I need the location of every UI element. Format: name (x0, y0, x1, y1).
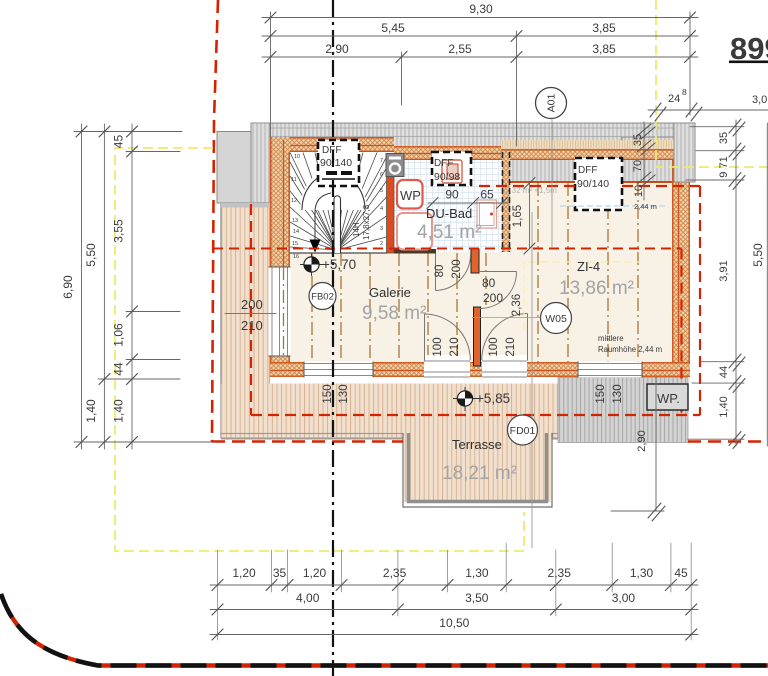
svg-text:44: 44 (718, 366, 730, 378)
svg-text:200: 200 (483, 291, 503, 305)
svg-text:FD01: FD01 (510, 425, 536, 437)
svg-text:2,35: 2,35 (383, 566, 407, 580)
svg-text:1,20: 1,20 (303, 566, 327, 580)
svg-text:2: 2 (380, 241, 383, 247)
svg-text:3,85: 3,85 (592, 42, 616, 56)
svg-text:9 71: 9 71 (718, 156, 730, 177)
svg-text:2,32 m² <1,5m: 2,32 m² <1,5m (505, 186, 557, 195)
svg-text:5,50: 5,50 (751, 243, 765, 267)
svg-text:90: 90 (445, 188, 459, 202)
svg-text:16: 16 (293, 254, 299, 260)
svg-text:10: 10 (633, 185, 645, 197)
svg-text:Galerie: Galerie (369, 285, 411, 300)
svg-text:100: 100 (432, 337, 444, 356)
svg-text:65: 65 (480, 188, 494, 202)
svg-text:7: 7 (380, 158, 383, 164)
svg-text:Terrasse: Terrasse (452, 437, 502, 452)
svg-text:15: 15 (292, 241, 298, 247)
svg-text:80: 80 (482, 276, 496, 290)
svg-text:+5,70: +5,70 (322, 257, 356, 272)
svg-text:1,30: 1,30 (465, 566, 489, 580)
svg-text:8: 8 (682, 87, 687, 97)
svg-text:11: 11 (291, 177, 297, 183)
svg-text:W05: W05 (545, 313, 567, 325)
svg-text:3,55: 3,55 (112, 219, 126, 243)
svg-text:130: 130 (612, 384, 624, 403)
svg-text:1,40: 1,40 (718, 396, 730, 417)
svg-text:13: 13 (292, 218, 298, 224)
svg-text:Raumhöhe 2,44 m: Raumhöhe 2,44 m (598, 345, 662, 354)
svg-text:80: 80 (434, 265, 446, 278)
svg-text:WP.: WP. (657, 391, 680, 406)
svg-text:+5,85: +5,85 (476, 391, 510, 406)
svg-text:2,55: 2,55 (448, 42, 472, 56)
svg-text:100: 100 (488, 337, 500, 356)
svg-text:6,90: 6,90 (61, 275, 75, 299)
svg-text:3: 3 (380, 226, 383, 232)
svg-text:DFF: DFF (578, 165, 597, 176)
svg-text:35: 35 (632, 134, 644, 146)
svg-text:4,00: 4,00 (296, 591, 320, 605)
svg-text:44: 44 (112, 362, 126, 376)
svg-text:13,86 m²: 13,86 m² (559, 278, 634, 299)
svg-text:DU-Bad: DU-Bad (426, 206, 472, 221)
svg-text:45: 45 (674, 566, 688, 580)
svg-text:10: 10 (294, 154, 300, 160)
svg-text:DFF: DFF (322, 145, 341, 156)
svg-text:1,40: 1,40 (84, 399, 98, 423)
svg-text:2,36: 2,36 (511, 294, 523, 316)
svg-text:210: 210 (449, 337, 461, 356)
svg-text:150: 150 (595, 384, 607, 403)
svg-text:3,50: 3,50 (465, 591, 489, 605)
svg-text:2,44 m: 2,44 m (634, 202, 657, 211)
svg-text:3,00: 3,00 (612, 591, 636, 605)
svg-text:ZI-4: ZI-4 (577, 259, 600, 274)
svg-text:14: 14 (293, 229, 299, 235)
svg-text:90/98: 90/98 (434, 171, 460, 183)
svg-text:1,30: 1,30 (630, 566, 654, 580)
svg-text:24: 24 (668, 93, 680, 105)
svg-text:35: 35 (273, 566, 287, 580)
svg-text:1,40: 1,40 (112, 399, 126, 423)
svg-text:4: 4 (380, 206, 383, 212)
svg-text:1,06: 1,06 (112, 323, 126, 347)
svg-text:90/140: 90/140 (320, 157, 352, 169)
svg-text:2,35: 2,35 (548, 566, 572, 580)
svg-text:90/140: 90/140 (577, 178, 609, 190)
svg-text:3,85: 3,85 (592, 21, 616, 35)
svg-text:5,50: 5,50 (84, 243, 98, 267)
svg-text:35: 35 (718, 132, 730, 144)
svg-text:130: 130 (338, 384, 350, 403)
svg-text:FB02: FB02 (311, 292, 334, 303)
svg-text:3,91: 3,91 (718, 260, 730, 281)
svg-text:3,0: 3,0 (752, 94, 767, 106)
svg-text:2,90: 2,90 (636, 430, 648, 451)
svg-text:210: 210 (505, 337, 517, 356)
svg-text:18,21 m²: 18,21 m² (442, 463, 517, 484)
svg-text:5: 5 (380, 188, 383, 194)
svg-text:9,30: 9,30 (469, 2, 493, 16)
svg-text:45: 45 (112, 135, 126, 149)
svg-text:12: 12 (291, 198, 297, 204)
svg-text:70: 70 (632, 160, 644, 172)
svg-text:6: 6 (380, 172, 383, 178)
svg-text:150: 150 (322, 384, 334, 403)
svg-text:A01: A01 (546, 94, 558, 113)
svg-text:5,45: 5,45 (381, 21, 405, 35)
svg-text:DFF: DFF (434, 158, 453, 169)
svg-text:mittlere: mittlere (598, 334, 624, 343)
svg-text:1,20: 1,20 (232, 566, 256, 580)
svg-text:17,8x27,8: 17,8x27,8 (362, 204, 371, 240)
svg-text:210: 210 (241, 318, 263, 333)
svg-text:200: 200 (241, 297, 263, 312)
svg-text:2,90: 2,90 (325, 42, 349, 56)
svg-text:14H: 14H (352, 222, 361, 237)
svg-text:9,58 m²: 9,58 m² (362, 303, 426, 324)
svg-text:1,65: 1,65 (512, 205, 524, 227)
svg-text:WP: WP (400, 188, 421, 203)
svg-text:10,50: 10,50 (439, 616, 469, 630)
svg-text:4,51 m²: 4,51 m² (417, 222, 481, 243)
svg-text:200: 200 (451, 259, 463, 278)
